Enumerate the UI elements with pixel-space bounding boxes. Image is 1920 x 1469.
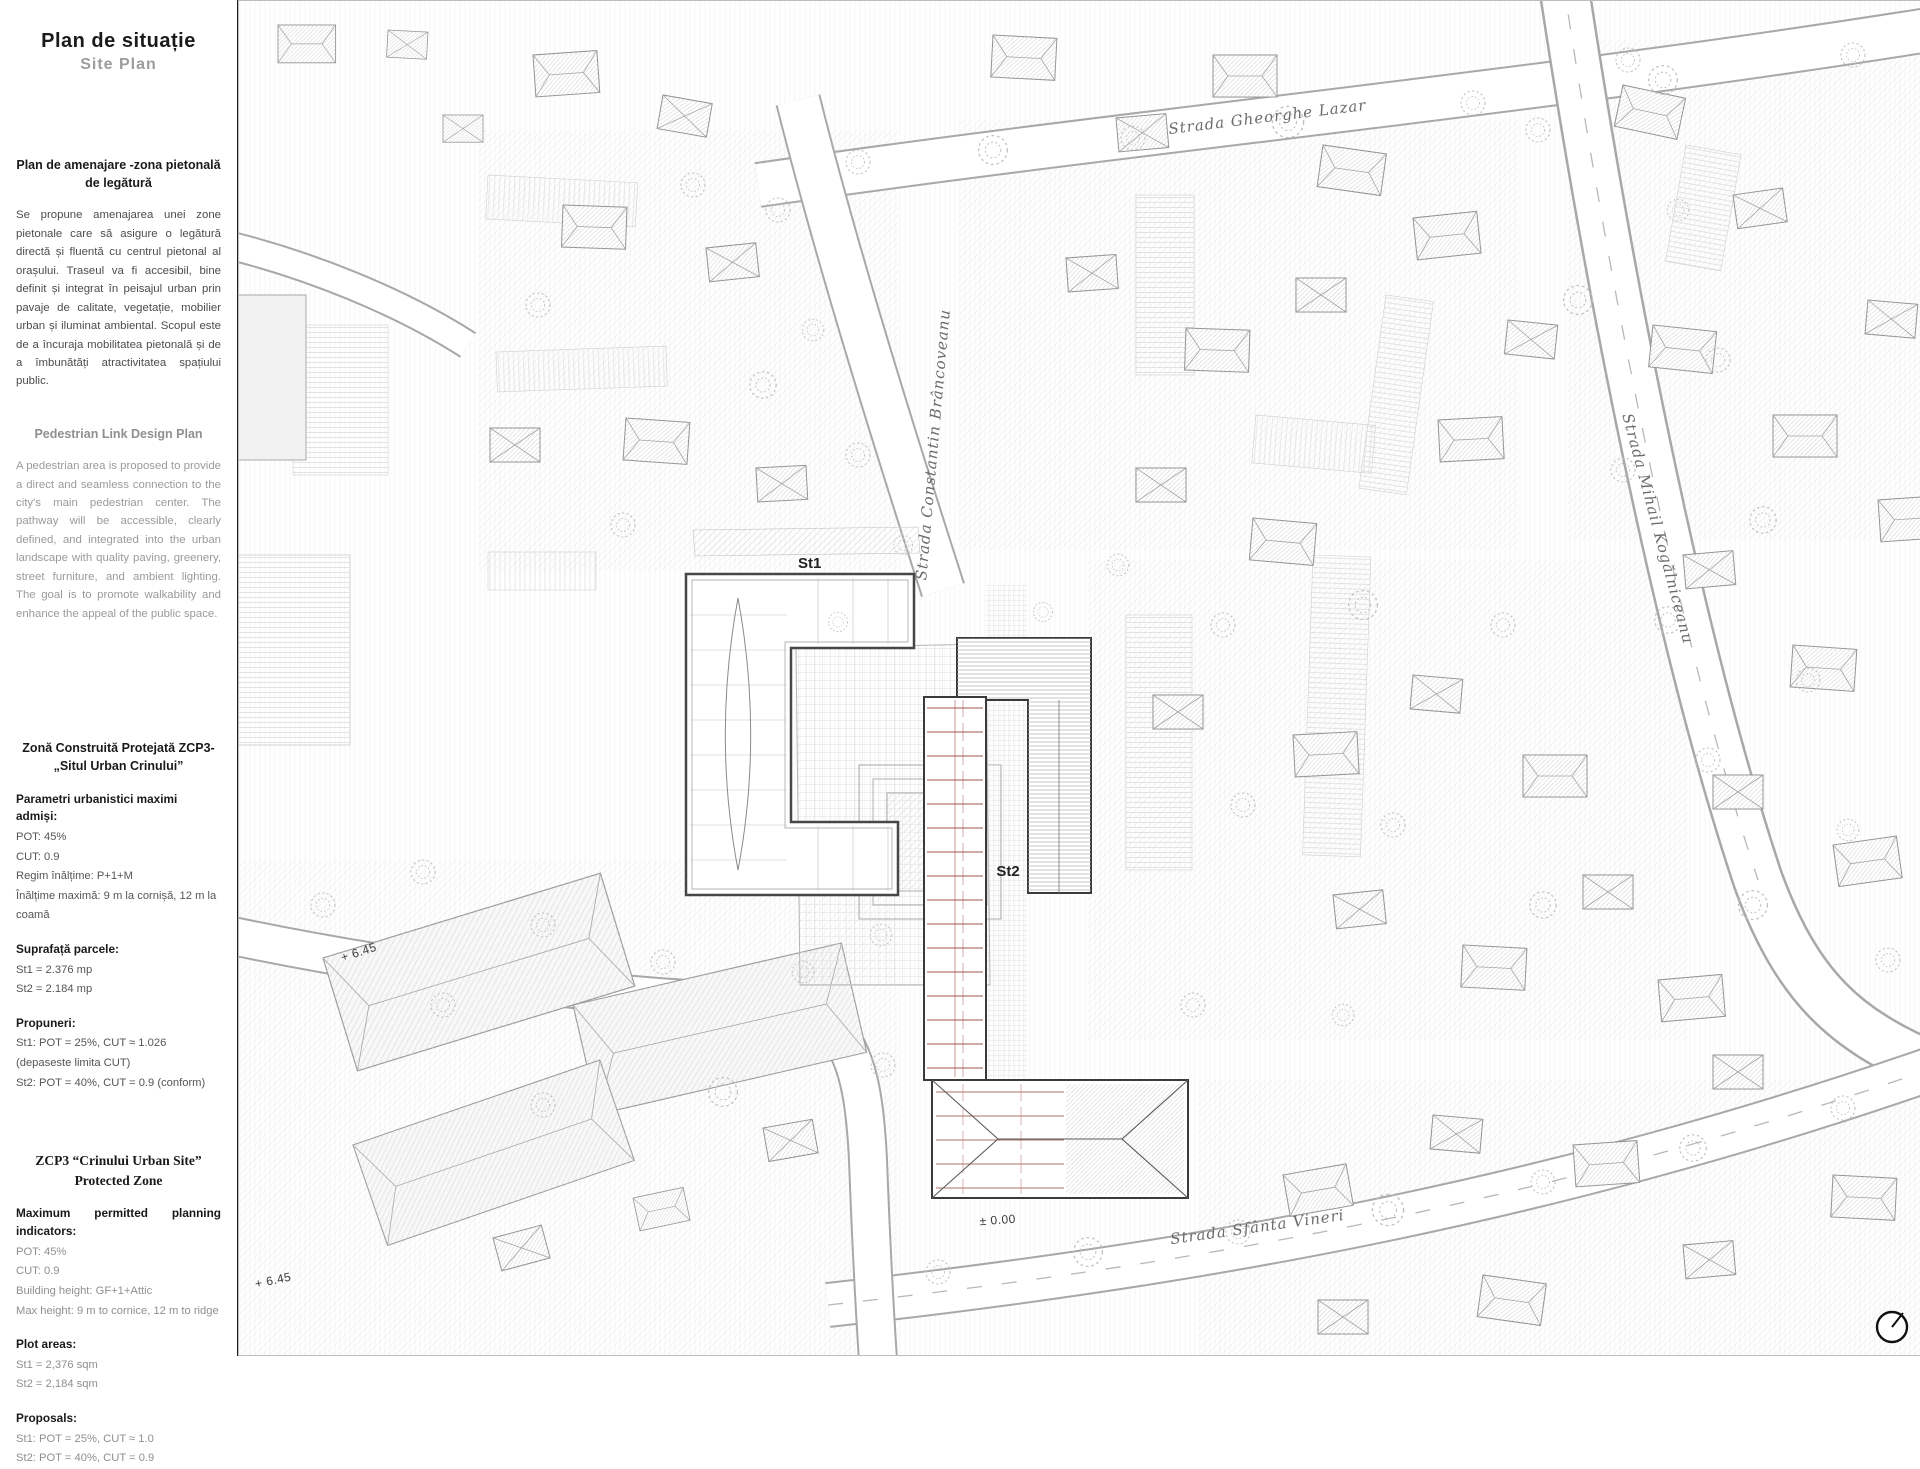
section-ro-plan: Plan de amenajare -zona pietonală de leg… [16,156,221,391]
ro-zone-proposals: Propuneri: St1: POT = 25%, CUT ≈ 1.026 (… [16,1015,221,1093]
sidebar: Plan de situație Site Plan Plan de amena… [0,0,237,1356]
proposal-line: St1: POT = 25%, CUT ≈ 1.026 (depaseste l… [16,1034,221,1073]
site-label-st2: St2 [996,863,1019,880]
en-zone-proposals-label: Proposals: [16,1410,221,1428]
ro-plan-heading: Plan de amenajare -zona pietonală de leg… [16,156,221,192]
ro-zone-params: Parametri urbanistici maximi admiși: POT… [16,791,221,926]
site-label-st1: St1 [798,555,821,572]
section-en-plan: Pedestrian Link Design Plan A pedestrian… [16,425,221,623]
proposal-line: St1: POT = 25%, CUT ≈ 1.0 [16,1430,221,1450]
param-line: POT: 45% [16,1243,221,1263]
proposal-line: St2: POT = 40%, CUT = 0.9 [16,1449,221,1469]
en-zone-areas-label: Plot areas: [16,1336,221,1354]
param-line: Înălțime maximă: 9 m la cornișă, 12 m la… [16,887,221,926]
param-line: CUT: 0.9 [16,1262,221,1282]
param-line: POT: 45% [16,828,221,848]
ro-zone-params-label: Parametri urbanistici maximi admiși: [16,791,221,826]
en-zone-proposals: Proposals: St1: POT = 25%, CUT ≈ 1.0 St2… [16,1410,221,1469]
en-plan-body: A pedestrian area is proposed to provide… [16,457,221,623]
ro-plan-body: Se propune amenajarea unei zone pietonal… [16,206,221,391]
page-title: Plan de situație [16,30,221,53]
section-ro-zone: Zonă Construită Protejată ZCP3- „Situl U… [16,739,221,1093]
param-line: Building height: GF+1+Attic [16,1282,221,1302]
site-plan-map: Strada Gheorghe Lazar Strada Constantin … [237,0,1920,1356]
area-line: St1 = 2.376 mp [16,961,221,981]
proposal-line: St2: POT = 40%, CUT = 0.9 (conform) [16,1074,221,1094]
site-plan-drawing: Strada Gheorghe Lazar Strada Constantin … [238,0,1920,1356]
ro-zone-heading: Zonă Construită Protejată ZCP3- „Situl U… [16,739,221,775]
north-arrow-icon [1877,1312,1907,1342]
en-zone-params: Maximum permitted planning indicators: P… [16,1205,221,1321]
page-subtitle: Site Plan [16,56,221,74]
en-zone-heading: ZCP3 “Crinului Urban Site” Protected Zon… [16,1151,221,1190]
area-line: St2 = 2,184 sqm [16,1375,221,1395]
param-line: CUT: 0.9 [16,848,221,868]
en-plan-heading: Pedestrian Link Design Plan [16,425,221,443]
en-zone-areas: Plot areas: St1 = 2,376 sqm St2 = 2,184 … [16,1336,221,1395]
en-zone-params-label: Maximum permitted planning indicators: [16,1205,221,1240]
section-en-zone: ZCP3 “Crinului Urban Site” Protected Zon… [16,1151,221,1469]
ro-zone-areas: Suprafață parcele: St1 = 2.376 mp St2 = … [16,941,221,1000]
area-line: St1 = 2,376 sqm [16,1356,221,1376]
param-line: Max height: 9 m to cornice, 12 m to ridg… [16,1302,221,1322]
area-line: St2 = 2.184 mp [16,980,221,1000]
level-label-zero: ± 0.00 [979,1212,1016,1228]
ro-zone-proposals-label: Propuneri: [16,1015,221,1033]
param-line: Regim înălțime: P+1+M [16,867,221,887]
ro-zone-areas-label: Suprafață parcele: [16,941,221,959]
